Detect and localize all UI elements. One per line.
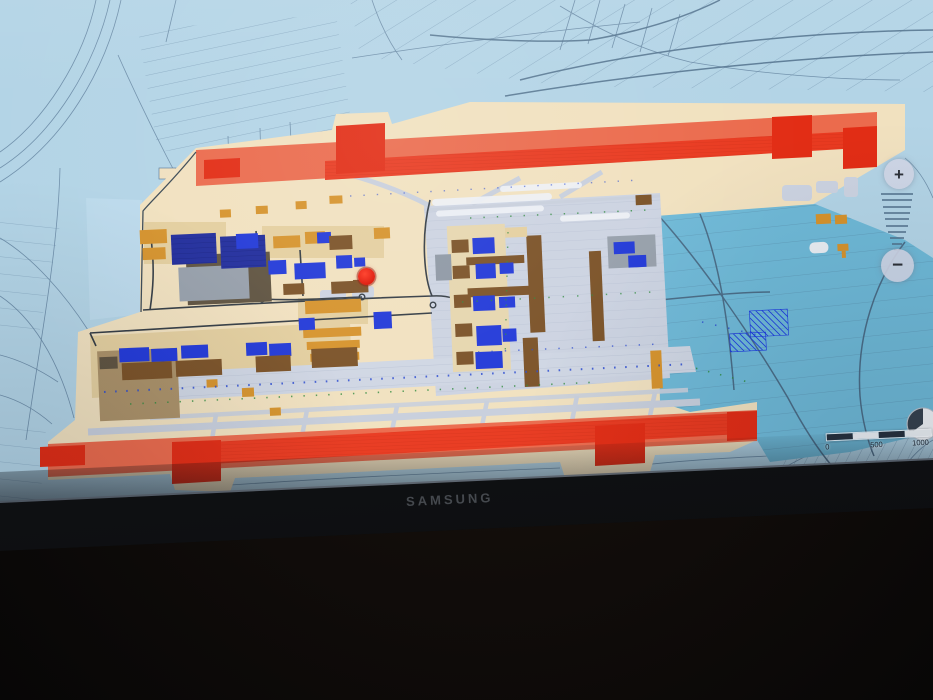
minus-icon: − [892, 256, 903, 275]
scale-label-1000: 1000 [912, 438, 929, 448]
scale-segment [853, 432, 879, 439]
scale-segment [827, 433, 853, 440]
zoom-in-button[interactable]: + [884, 159, 914, 189]
location-marker-icon[interactable] [358, 268, 375, 285]
scale-label-0: 0 [825, 442, 830, 451]
brand-logo: SAMSUNG [406, 490, 494, 509]
scale-label-500: 500 [870, 440, 883, 450]
scale-segment [879, 431, 905, 438]
plus-icon: + [894, 166, 904, 183]
scale-segment [905, 430, 931, 437]
monitor-photo: + − 0 500 1000 [0, 0, 933, 700]
zoom-out-button[interactable]: − [881, 249, 914, 282]
